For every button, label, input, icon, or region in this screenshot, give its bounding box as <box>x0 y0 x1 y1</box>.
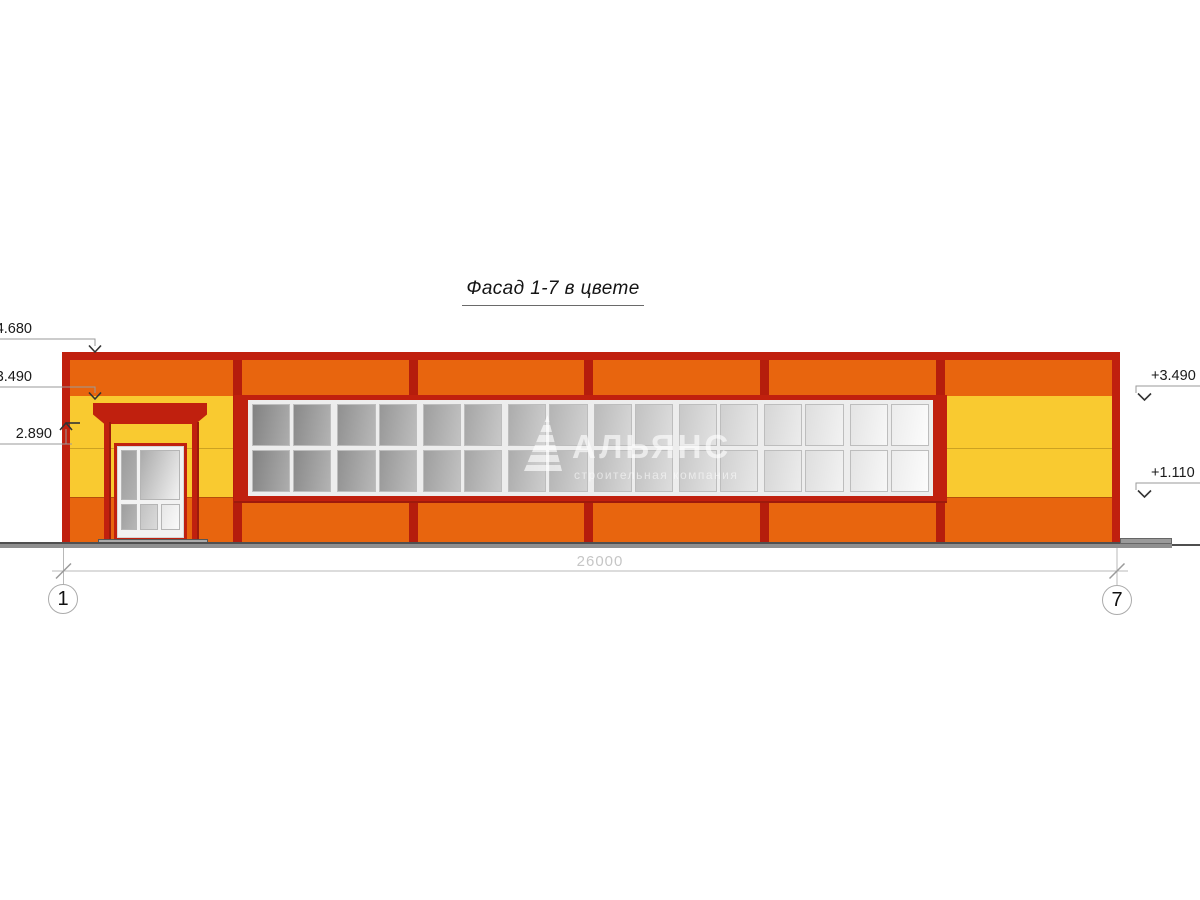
window-glass-pane <box>549 404 587 446</box>
door-glass-pane <box>140 450 180 500</box>
dimension-26000: 26000 <box>520 553 680 570</box>
window-glass-pane <box>293 450 331 492</box>
window-glass-pane <box>891 450 929 492</box>
window-glass-pane <box>464 450 502 492</box>
page-title: Фасад 1-7 в цвете <box>462 278 643 306</box>
window-glass-pane <box>464 404 502 446</box>
axis-number-1: 1 <box>57 588 68 611</box>
window-glass-pane <box>805 404 843 446</box>
window-glass-pane <box>549 450 587 492</box>
axis-number-7: 7 <box>1111 589 1122 612</box>
door-glass-pane <box>161 504 180 530</box>
window-glass-pane <box>252 450 290 492</box>
elevation-mark-1110: +1.110 <box>1151 465 1195 481</box>
window-glass-pane <box>679 450 717 492</box>
facade-drawing-canvas: { "title": "Фасад 1-7 в цвете", "waterma… <box>0 0 1200 900</box>
drawing-title-wrap: Фасад 1-7 в цвете <box>433 278 673 306</box>
door-glass-pane <box>121 504 137 530</box>
door-glazing <box>121 450 180 532</box>
window-glass-pane <box>508 450 546 492</box>
window-glass-grid <box>248 400 933 496</box>
corner-column-right <box>1112 352 1120 543</box>
window-glass-pane <box>594 404 632 446</box>
window-glass-pane <box>293 404 331 446</box>
window-glass-pane <box>850 404 888 446</box>
ground-line-extension <box>1172 544 1200 546</box>
window-glass-pane <box>379 404 417 446</box>
window-glass-pane <box>337 404 375 446</box>
window-glass-pane <box>252 404 290 446</box>
window-pane-group <box>508 404 587 492</box>
window-pane-group <box>679 404 758 492</box>
window-glass-pane <box>635 404 673 446</box>
entrance-canopy <box>93 403 207 424</box>
window-glass-pane <box>679 404 717 446</box>
window-glass-pane <box>594 450 632 492</box>
window-glass-pane <box>379 450 417 492</box>
window-pane-group <box>594 404 673 492</box>
corner-column-left <box>62 352 70 543</box>
window-glass-pane <box>764 450 802 492</box>
canopy-post-left <box>104 422 111 541</box>
window-pane-group <box>252 404 331 492</box>
facade-elevation: АЛЬЯНС строительная компания <box>62 352 1120 543</box>
window-glass-pane <box>850 450 888 492</box>
window-glass-pane <box>635 450 673 492</box>
window-glass-pane <box>891 404 929 446</box>
window-pane-group <box>337 404 416 492</box>
entrance-door <box>114 443 187 541</box>
window-glass-pane <box>337 450 375 492</box>
plinth-right <box>1120 538 1172 544</box>
window-pane-group <box>423 404 502 492</box>
door-glass-pane <box>121 450 137 500</box>
elevation-mark-3490-left: 3.490 <box>0 369 32 385</box>
elevation-mark-2890: 2.890 <box>6 426 52 442</box>
elevation-mark-3490-right: +3.490 <box>1151 368 1196 384</box>
door-glass-pane <box>140 504 158 530</box>
window-glass-pane <box>423 450 461 492</box>
window-glass-pane <box>720 450 758 492</box>
window-glass-pane <box>720 404 758 446</box>
window-pane-group <box>764 404 843 492</box>
window-glass-pane <box>764 404 802 446</box>
axis-bubble-7: 7 <box>1102 585 1132 615</box>
axis-bubble-1: 1 <box>48 584 78 614</box>
elevation-mark-4680: 4.680 <box>0 321 32 337</box>
window-glass-pane <box>423 404 461 446</box>
ribbon-window: АЛЬЯНС строительная компания <box>234 395 947 503</box>
canopy-post-right <box>192 422 199 541</box>
ground-line <box>0 542 1172 548</box>
window-pane-group <box>850 404 929 492</box>
window-glass-pane <box>508 404 546 446</box>
window-glass-pane <box>805 450 843 492</box>
